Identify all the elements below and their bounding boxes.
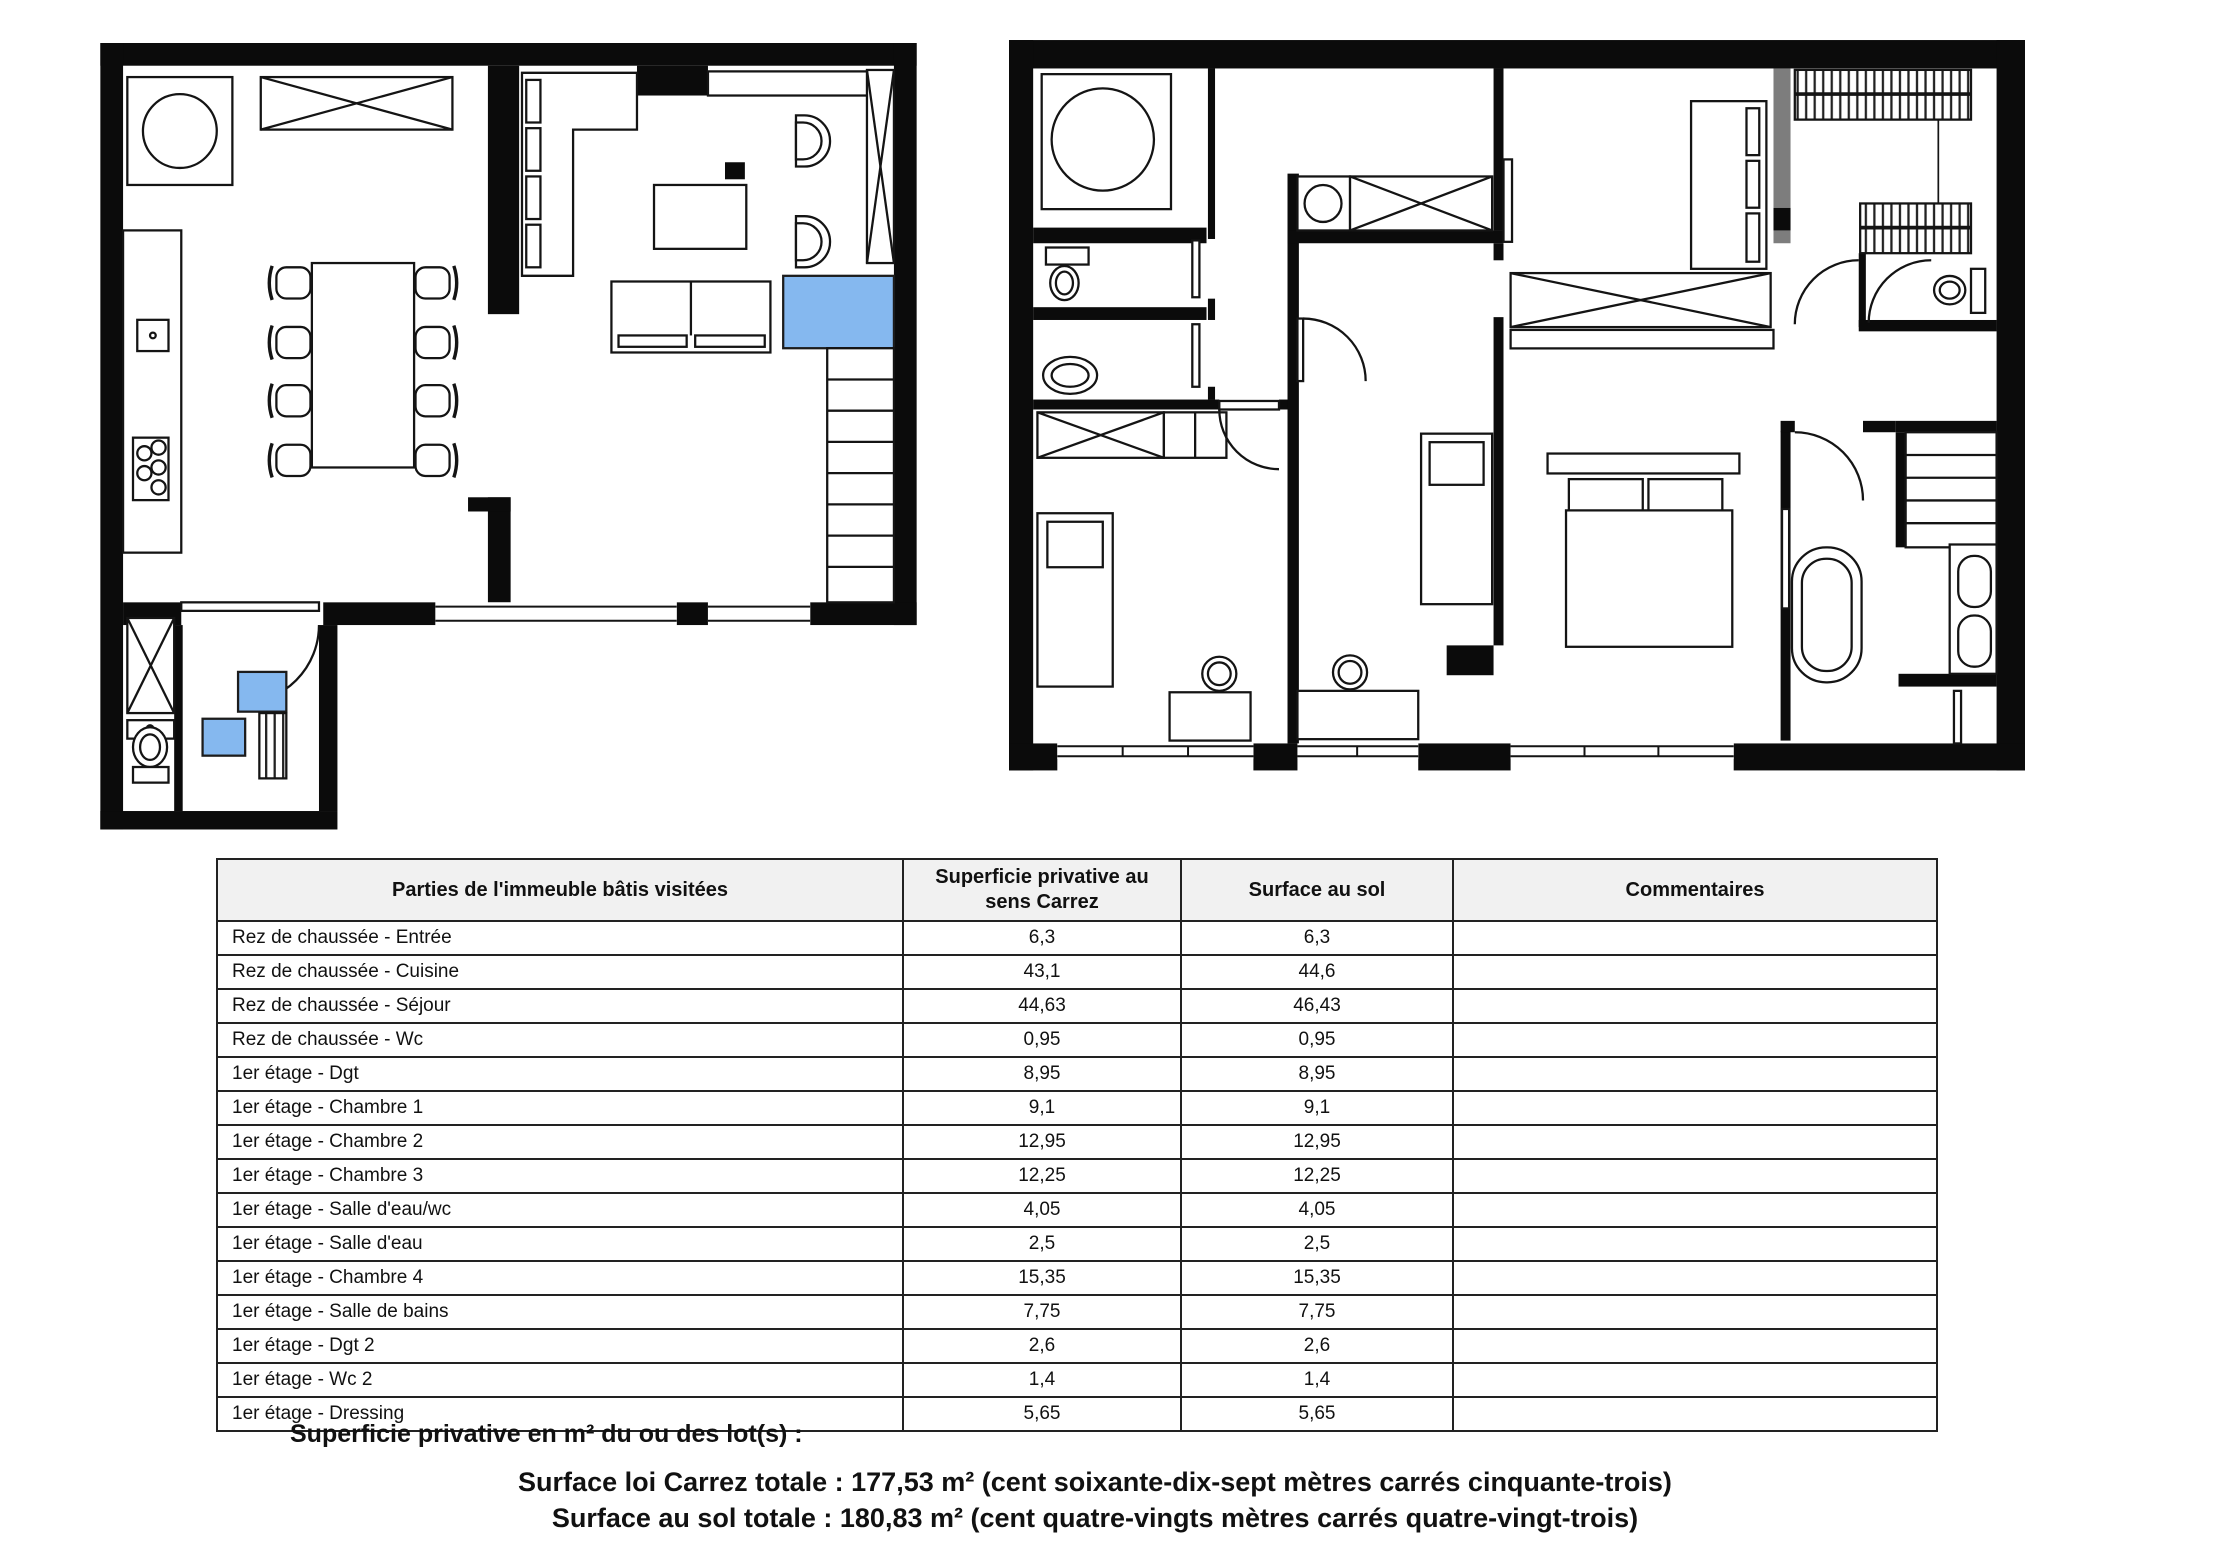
kitchen-corner-unit xyxy=(127,77,232,185)
surface-sol-value: 4,05 xyxy=(1181,1193,1453,1227)
carrez-value: 8,95 xyxy=(903,1057,1181,1091)
surface-sol-value: 12,95 xyxy=(1181,1125,1453,1159)
carrez-value: 7,75 xyxy=(903,1295,1181,1329)
comment-cell xyxy=(1453,1227,1937,1261)
coffee-table xyxy=(654,185,746,249)
surface-sol-value: 2,5 xyxy=(1181,1227,1453,1261)
room-label: Rez de chaussée - Entrée xyxy=(217,921,903,955)
surface-sol-value: 2,6 xyxy=(1181,1329,1453,1363)
areas-table-header-row: Parties de l'immeuble bâtis visitées Sup… xyxy=(217,859,1937,921)
room-label: 1er étage - Dgt 2 xyxy=(217,1329,903,1363)
ground-floor-plan xyxy=(100,43,917,838)
carrez-value: 43,1 xyxy=(903,955,1181,989)
header-carrez: Superficie privative au sens Carrez xyxy=(903,859,1181,921)
room-label: 1er étage - Salle de bains xyxy=(217,1295,903,1329)
table-row: Rez de chaussée - Wc 0,95 0,95 xyxy=(217,1023,1937,1057)
tv-icon xyxy=(725,162,745,179)
surface-sol-value: 7,75 xyxy=(1181,1295,1453,1329)
comment-cell xyxy=(1453,1193,1937,1227)
door-leaf xyxy=(1192,324,1199,387)
room-label: 1er étage - Chambre 4 xyxy=(217,1261,903,1295)
areas-table-body: Rez de chaussée - Entrée 6,3 6,3 Rez de … xyxy=(217,921,1937,1431)
carrez-value: 2,5 xyxy=(903,1227,1181,1261)
hob-icon xyxy=(133,438,168,500)
table-row: 1er étage - Wc 2 1,4 1,4 xyxy=(217,1363,1937,1397)
room-label: 1er étage - Chambre 1 xyxy=(217,1091,903,1125)
header-surface-sol: Surface au sol xyxy=(1181,859,1453,921)
door-swing xyxy=(1303,319,1366,382)
surface-sol-value: 8,95 xyxy=(1181,1057,1453,1091)
door-leaf xyxy=(1782,509,1789,608)
table-row: 1er étage - Chambre 2 12,95 12,95 xyxy=(217,1125,1937,1159)
kitchen-counter xyxy=(123,230,181,552)
totals-block: Surface loi Carrez totale : 177,53 m² (c… xyxy=(0,1464,2190,1537)
carrez-value: 12,25 xyxy=(903,1159,1181,1193)
crossed-cabinet xyxy=(1350,176,1492,230)
room-label: Rez de chaussée - Séjour xyxy=(217,989,903,1023)
table-row: 1er étage - Chambre 4 15,35 15,35 xyxy=(217,1261,1937,1295)
door-leaf xyxy=(1297,319,1303,382)
slatted-cabinet xyxy=(522,73,637,276)
vanity-sinks xyxy=(1950,544,1997,673)
desk-chair-icon xyxy=(1202,657,1236,691)
areas-table: Parties de l'immeuble bâtis visitées Sup… xyxy=(216,858,1938,1432)
table-row: Rez de chaussée - Entrée 6,3 6,3 xyxy=(217,921,1937,955)
basin-icon xyxy=(1043,357,1097,394)
wc-sink xyxy=(1046,248,1089,265)
surface-sol-value: 44,6 xyxy=(1181,955,1453,989)
table-row: Rez de chaussée - Cuisine 43,1 44,6 xyxy=(217,955,1937,989)
room-label: 1er étage - Salle d'eau xyxy=(217,1227,903,1261)
table-row: 1er étage - Salle d'eau/wc 4,05 4,05 xyxy=(217,1193,1937,1227)
toilet-icon xyxy=(1934,269,1985,313)
desk xyxy=(1297,691,1418,739)
stairs xyxy=(827,348,894,602)
surface-sol-value: 12,25 xyxy=(1181,1159,1453,1193)
carrez-value: 2,6 xyxy=(903,1329,1181,1363)
table-row: 1er étage - Chambre 3 12,25 12,25 xyxy=(217,1159,1937,1193)
room-label: 1er étage - Chambre 2 xyxy=(217,1125,903,1159)
surface-sol-value: 15,35 xyxy=(1181,1261,1453,1295)
sofa xyxy=(611,282,770,353)
stairs xyxy=(1906,432,1997,547)
table-row: 1er étage - Salle de bains 7,75 7,75 xyxy=(217,1295,1937,1329)
table-row: 1er étage - Chambre 1 9,1 9,1 xyxy=(217,1091,1937,1125)
door-swing xyxy=(1795,432,1863,500)
surface-sol-value: 9,1 xyxy=(1181,1091,1453,1125)
dining-table xyxy=(312,263,414,467)
comment-cell xyxy=(1453,1329,1937,1363)
wall-shelf xyxy=(708,71,870,95)
door-leaf xyxy=(1192,240,1199,297)
comment-cell xyxy=(1453,1057,1937,1091)
table-row: 1er étage - Dgt 8,95 8,95 xyxy=(217,1057,1937,1091)
carrez-total-text: Surface loi Carrez totale : 177,53 m² (c… xyxy=(0,1464,2190,1500)
comment-cell xyxy=(1453,1363,1937,1397)
comment-cell xyxy=(1453,1023,1937,1057)
carrez-value: 4,05 xyxy=(903,1193,1181,1227)
door-swing xyxy=(1219,410,1279,470)
bathtub-icon xyxy=(1792,547,1862,682)
door-leaf xyxy=(1954,691,1961,744)
armchair-icon xyxy=(796,216,830,267)
room-label: 1er étage - Chambre 3 xyxy=(217,1159,903,1193)
windows xyxy=(435,602,810,625)
comment-cell xyxy=(1453,921,1937,955)
door-leaf xyxy=(1504,159,1513,241)
windows xyxy=(1057,743,1733,759)
comment-cell xyxy=(1453,1295,1937,1329)
carrez-value: 5,65 xyxy=(903,1397,1181,1431)
surface-sol-value: 46,43 xyxy=(1181,989,1453,1023)
double-bed xyxy=(1548,454,1740,647)
superficie-intro-text: Superficie privative en m² du ou des lot… xyxy=(290,1420,803,1449)
comment-cell xyxy=(1453,989,1937,1023)
door-swing xyxy=(1869,260,1932,323)
radiator-icon xyxy=(259,713,286,778)
toilet-icon xyxy=(1050,266,1078,300)
room-label: 1er étage - Wc 2 xyxy=(217,1363,903,1397)
carrez-value: 12,95 xyxy=(903,1125,1181,1159)
room-label: Rez de chaussée - Cuisine xyxy=(217,955,903,989)
tall-wardrobe xyxy=(867,70,894,263)
table-row: 1er étage - Dgt 2 2,6 2,6 xyxy=(217,1329,1937,1363)
shelf-band xyxy=(1511,330,1774,348)
toilet-icon xyxy=(133,727,168,782)
door-swing xyxy=(1795,260,1859,324)
comment-cell xyxy=(1453,955,1937,989)
header-parties: Parties de l'immeuble bâtis visitées xyxy=(217,859,903,921)
comment-cell xyxy=(1453,1159,1937,1193)
door-leaf xyxy=(1219,401,1279,410)
comment-cell xyxy=(1453,1397,1937,1431)
surface-sol-value: 0,95 xyxy=(1181,1023,1453,1057)
slatted-wardrobe xyxy=(1691,101,1766,269)
comment-cell xyxy=(1453,1261,1937,1295)
armchair-icon xyxy=(796,115,830,166)
clothes-rack-icon xyxy=(1795,70,1971,204)
comment-cell xyxy=(1453,1125,1937,1159)
door-leaf xyxy=(181,602,319,611)
carrez-value: 15,35 xyxy=(903,1261,1181,1295)
room-label: 1er étage - Dgt xyxy=(217,1057,903,1091)
room-label: 1er étage - Salle d'eau/wc xyxy=(217,1193,903,1227)
comment-cell xyxy=(1453,1091,1937,1125)
stair-landing-highlight xyxy=(783,276,894,348)
bath-sink-unit xyxy=(1297,176,1350,230)
carrez-value: 44,63 xyxy=(903,989,1181,1023)
first-floor-plan xyxy=(1009,40,2025,779)
entry-cabinet xyxy=(127,618,174,713)
table-row: Rez de chaussée - Séjour 44,63 46,43 xyxy=(217,989,1937,1023)
shower-highlight xyxy=(238,672,286,712)
kitchen-top-cabinet xyxy=(261,77,453,130)
carrez-value: 1,4 xyxy=(903,1363,1181,1397)
carrez-value: 6,3 xyxy=(903,921,1181,955)
desk xyxy=(1170,692,1251,740)
table-row: 1er étage - Salle d'eau 2,5 2,5 xyxy=(217,1227,1937,1261)
single-bed xyxy=(1037,513,1112,686)
washing-machine-icon xyxy=(1042,74,1171,209)
surface-sol-value: 6,3 xyxy=(1181,921,1453,955)
clothes-rack-icon xyxy=(1860,203,1971,253)
surface-sol-value: 5,65 xyxy=(1181,1397,1453,1431)
carrez-value: 0,95 xyxy=(903,1023,1181,1057)
sol-total-text: Surface au sol totale : 180,83 m² (cent … xyxy=(0,1500,2190,1536)
shower-tray-highlight xyxy=(203,719,246,756)
crossed-cabinet xyxy=(1511,273,1771,327)
header-commentaires: Commentaires xyxy=(1453,859,1937,921)
document-page: Parties de l'immeuble bâtis visitées Sup… xyxy=(0,0,2228,1556)
carrez-value: 9,1 xyxy=(903,1091,1181,1125)
room-label: Rez de chaussée - Wc xyxy=(217,1023,903,1057)
surface-sol-value: 1,4 xyxy=(1181,1363,1453,1397)
crossed-cabinet xyxy=(1037,412,1226,457)
desk-chair-icon xyxy=(1333,655,1367,689)
single-bed xyxy=(1421,434,1492,605)
